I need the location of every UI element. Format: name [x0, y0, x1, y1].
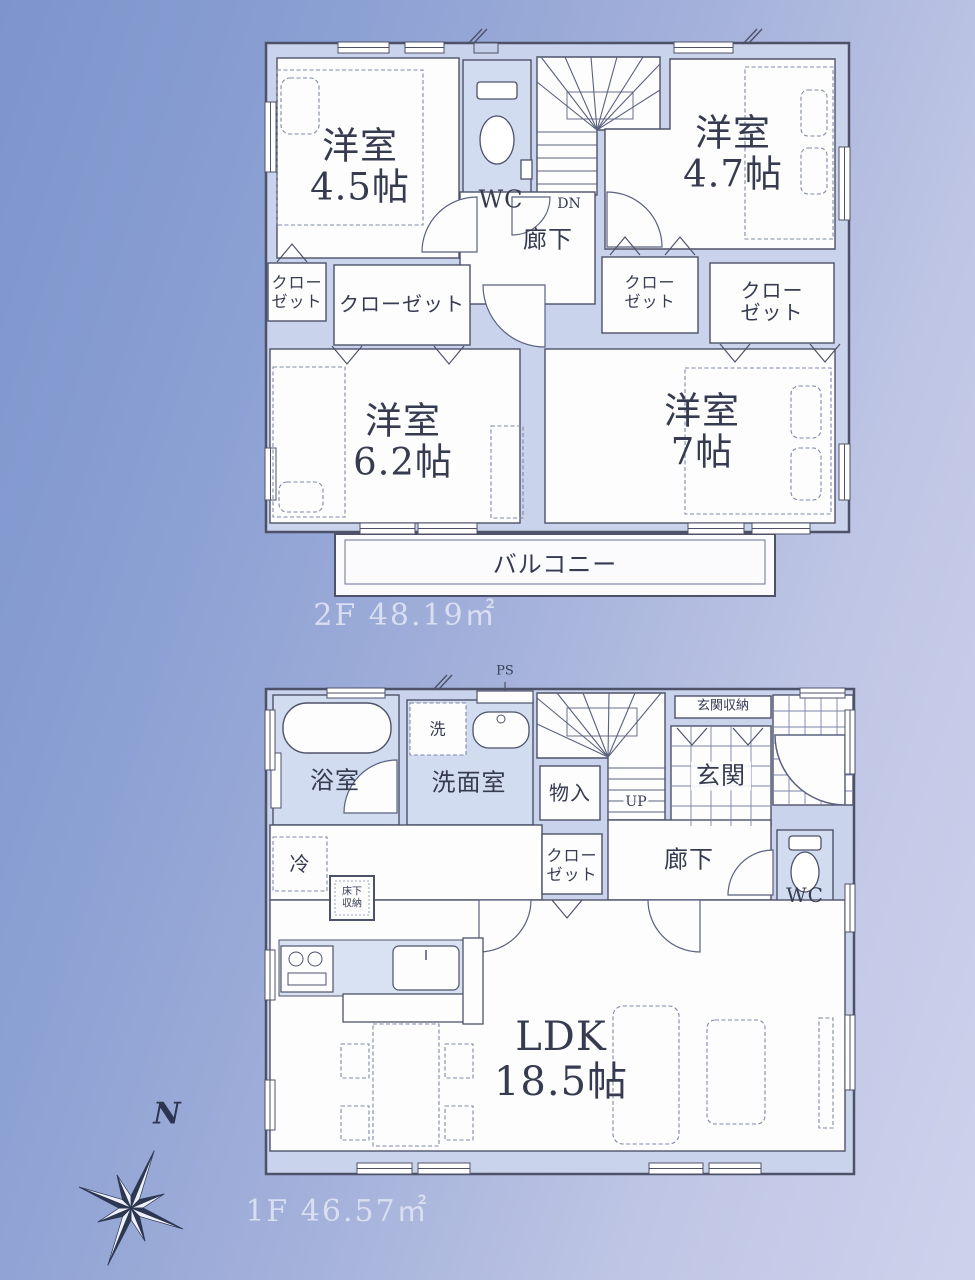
- sink-icon: [473, 712, 529, 748]
- balcony-structure: [335, 534, 775, 596]
- floor-1-plan: PS 浴室 洗 洗面室 玄関収納 玄関 物入 UP クロー ゼット 廊下 WC …: [265, 688, 855, 1175]
- room-ldk-floor: [270, 900, 845, 1151]
- kitchen-sink-icon: [393, 946, 459, 990]
- compass-star-icon: [56, 1130, 206, 1280]
- pipe-space-box: [477, 682, 533, 703]
- floor-2-area-label: 2F 48.19㎡: [313, 590, 496, 634]
- closet-floor: [542, 834, 602, 894]
- floorplan-page: { "colors":{ "background_top_left":"#7d9…: [0, 0, 975, 1280]
- floor-1-area-label: 1F 46.57㎡: [245, 1186, 428, 1230]
- room-bedroom62-floor: [270, 349, 520, 523]
- pipe-space-label: PS: [496, 665, 514, 680]
- closet-right-wide-floor: [710, 263, 834, 343]
- stove-icon: [281, 946, 333, 992]
- floor-2-drawing: [265, 42, 850, 600]
- closet-right-small-floor: [602, 257, 698, 333]
- room-storage-floor: [540, 766, 600, 820]
- rooms: [268, 57, 835, 523]
- counter-end-panel: [463, 938, 483, 1024]
- washer-icon: [410, 703, 466, 755]
- room-bedroom7-floor: [545, 349, 835, 523]
- closet-left-wide-floor: [334, 265, 470, 345]
- north-label: N: [153, 1097, 180, 1132]
- entrance-floor: [671, 726, 771, 826]
- counter-front: [343, 994, 473, 1022]
- floor-2-plan: 洋室 4.5帖 WC DN 廊下 洋室 4.7帖 クロー ゼット クローゼット …: [265, 42, 850, 600]
- underfloor-storage-icon: [330, 876, 374, 920]
- entrance-storage-floor: [675, 696, 771, 718]
- closet-left-small-floor: [268, 263, 326, 321]
- refrigerator-icon: [273, 837, 327, 891]
- floor-1-drawing: [265, 688, 855, 1175]
- toilet-icon: [789, 836, 821, 892]
- compass-drawing: [55, 1090, 205, 1280]
- compass-rose: N: [55, 1090, 205, 1280]
